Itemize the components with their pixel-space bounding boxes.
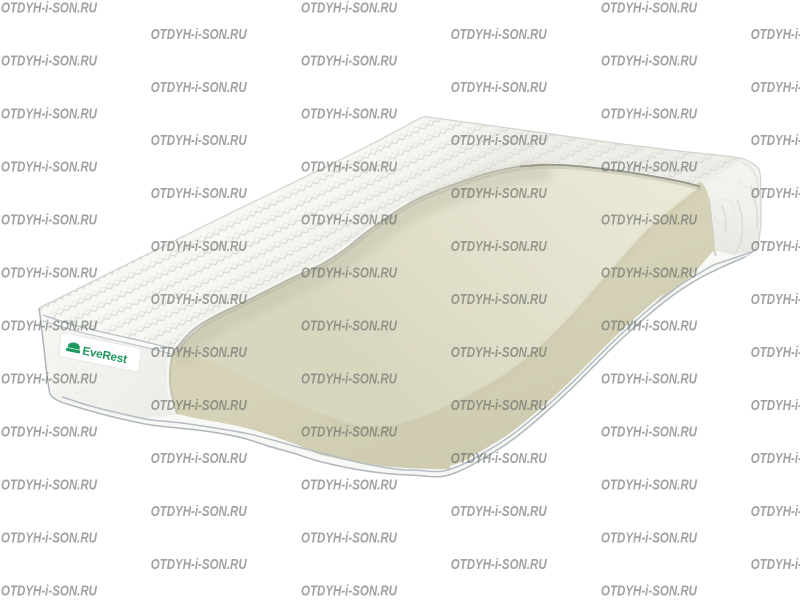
- svg-text:OTDYH-i-SON.RU: OTDYH-i-SON.RU: [151, 291, 248, 308]
- svg-text:OTDYH-i-SON.RU: OTDYH-i-SON.RU: [601, 424, 698, 441]
- svg-text:OTDYH-i-SON.RU: OTDYH-i-SON.RU: [301, 265, 398, 282]
- svg-text:OTDYH-i-SON.RU: OTDYH-i-SON.RU: [451, 503, 548, 520]
- svg-text:OTDYH-i-SON.RU: OTDYH-i-SON.RU: [151, 185, 248, 202]
- svg-text:OTDYH-i-SON.RU: OTDYH-i-SON.RU: [451, 450, 548, 467]
- svg-text:OTDYH-i-SON.RU: OTDYH-i-SON.RU: [151, 79, 248, 96]
- svg-text:OTDYH-i-SON.RU: OTDYH-i-SON.RU: [451, 291, 548, 308]
- svg-text:OTDYH-i-SON.RU: OTDYH-i-SON.RU: [751, 291, 800, 308]
- svg-text:OTDYH-i-SON.RU: OTDYH-i-SON.RU: [151, 26, 248, 43]
- svg-text:OTDYH-i-SON.RU: OTDYH-i-SON.RU: [301, 424, 398, 441]
- svg-text:OTDYH-i-SON.RU: OTDYH-i-SON.RU: [301, 371, 398, 388]
- svg-text:OTDYH-i-SON.RU: OTDYH-i-SON.RU: [151, 397, 248, 414]
- svg-text:OTDYH-i-SON.RU: OTDYH-i-SON.RU: [151, 503, 248, 520]
- svg-text:OTDYH-i-SON.RU: OTDYH-i-SON.RU: [1, 530, 98, 547]
- svg-text:OTDYH-i-SON.RU: OTDYH-i-SON.RU: [151, 556, 248, 573]
- svg-text:OTDYH-i-SON.RU: OTDYH-i-SON.RU: [301, 0, 398, 17]
- svg-text:OTDYH-i-SON.RU: OTDYH-i-SON.RU: [601, 0, 698, 17]
- svg-text:OTDYH-i-SON.RU: OTDYH-i-SON.RU: [601, 477, 698, 494]
- svg-text:OTDYH-i-SON.RU: OTDYH-i-SON.RU: [301, 530, 398, 547]
- svg-text:OTDYH-i-SON.RU: OTDYH-i-SON.RU: [1, 583, 98, 600]
- svg-text:OTDYH-i-SON.RU: OTDYH-i-SON.RU: [1, 53, 98, 70]
- svg-text:OTDYH-i-SON.RU: OTDYH-i-SON.RU: [601, 318, 698, 335]
- svg-text:OTDYH-i-SON.RU: OTDYH-i-SON.RU: [751, 397, 800, 414]
- svg-text:OTDYH-i-SON.RU: OTDYH-i-SON.RU: [451, 26, 548, 43]
- svg-text:OTDYH-i-SON.RU: OTDYH-i-SON.RU: [601, 371, 698, 388]
- svg-text:OTDYH-i-SON.RU: OTDYH-i-SON.RU: [301, 159, 398, 176]
- svg-text:OTDYH-i-SON.RU: OTDYH-i-SON.RU: [301, 53, 398, 70]
- svg-text:OTDYH-i-SON.RU: OTDYH-i-SON.RU: [451, 79, 548, 96]
- svg-text:OTDYH-i-SON.RU: OTDYH-i-SON.RU: [1, 265, 98, 282]
- svg-text:OTDYH-i-SON.RU: OTDYH-i-SON.RU: [301, 583, 398, 600]
- svg-text:OTDYH-i-SON.RU: OTDYH-i-SON.RU: [751, 450, 800, 467]
- svg-text:OTDYH-i-SON.RU: OTDYH-i-SON.RU: [301, 106, 398, 123]
- svg-text:OTDYH-i-SON.RU: OTDYH-i-SON.RU: [601, 265, 698, 282]
- svg-text:OTDYH-i-SON.RU: OTDYH-i-SON.RU: [1, 477, 98, 494]
- svg-text:OTDYH-i-SON.RU: OTDYH-i-SON.RU: [451, 185, 548, 202]
- svg-text:OTDYH-i-SON.RU: OTDYH-i-SON.RU: [751, 238, 800, 255]
- svg-text:OTDYH-i-SON.RU: OTDYH-i-SON.RU: [601, 53, 698, 70]
- svg-text:OTDYH-i-SON.RU: OTDYH-i-SON.RU: [451, 344, 548, 361]
- svg-text:OTDYH-i-SON.RU: OTDYH-i-SON.RU: [751, 26, 800, 43]
- svg-text:OTDYH-i-SON.RU: OTDYH-i-SON.RU: [451, 132, 548, 149]
- svg-text:OTDYH-i-SON.RU: OTDYH-i-SON.RU: [151, 450, 248, 467]
- svg-text:OTDYH-i-SON.RU: OTDYH-i-SON.RU: [151, 238, 248, 255]
- svg-text:OTDYH-i-SON.RU: OTDYH-i-SON.RU: [451, 238, 548, 255]
- svg-text:OTDYH-i-SON.RU: OTDYH-i-SON.RU: [601, 159, 698, 176]
- svg-text:OTDYH-i-SON.RU: OTDYH-i-SON.RU: [1, 371, 98, 388]
- svg-text:OTDYH-i-SON.RU: OTDYH-i-SON.RU: [601, 583, 698, 600]
- svg-text:OTDYH-i-SON.RU: OTDYH-i-SON.RU: [751, 185, 800, 202]
- svg-text:OTDYH-i-SON.RU: OTDYH-i-SON.RU: [151, 132, 248, 149]
- svg-text:OTDYH-i-SON.RU: OTDYH-i-SON.RU: [1, 212, 98, 229]
- svg-text:OTDYH-i-SON.RU: OTDYH-i-SON.RU: [1, 159, 98, 176]
- svg-text:OTDYH-i-SON.RU: OTDYH-i-SON.RU: [751, 344, 800, 361]
- svg-text:OTDYH-i-SON.RU: OTDYH-i-SON.RU: [301, 212, 398, 229]
- svg-text:OTDYH-i-SON.RU: OTDYH-i-SON.RU: [601, 106, 698, 123]
- svg-text:OTDYH-i-SON.RU: OTDYH-i-SON.RU: [601, 212, 698, 229]
- svg-text:OTDYH-i-SON.RU: OTDYH-i-SON.RU: [151, 344, 248, 361]
- svg-text:OTDYH-i-SON.RU: OTDYH-i-SON.RU: [751, 503, 800, 520]
- svg-text:OTDYH-i-SON.RU: OTDYH-i-SON.RU: [301, 318, 398, 335]
- svg-text:OTDYH-i-SON.RU: OTDYH-i-SON.RU: [301, 477, 398, 494]
- svg-text:OTDYH-i-SON.RU: OTDYH-i-SON.RU: [451, 397, 548, 414]
- svg-text:OTDYH-i-SON.RU: OTDYH-i-SON.RU: [451, 556, 548, 573]
- svg-text:OTDYH-i-SON.RU: OTDYH-i-SON.RU: [751, 132, 800, 149]
- svg-text:OTDYH-i-SON.RU: OTDYH-i-SON.RU: [1, 318, 98, 335]
- svg-text:OTDYH-i-SON.RU: OTDYH-i-SON.RU: [751, 79, 800, 96]
- svg-text:OTDYH-i-SON.RU: OTDYH-i-SON.RU: [1, 424, 98, 441]
- svg-text:OTDYH-i-SON.RU: OTDYH-i-SON.RU: [751, 556, 800, 573]
- svg-text:OTDYH-i-SON.RU: OTDYH-i-SON.RU: [1, 106, 98, 123]
- svg-text:OTDYH-i-SON.RU: OTDYH-i-SON.RU: [601, 530, 698, 547]
- svg-text:OTDYH-i-SON.RU: OTDYH-i-SON.RU: [1, 0, 98, 17]
